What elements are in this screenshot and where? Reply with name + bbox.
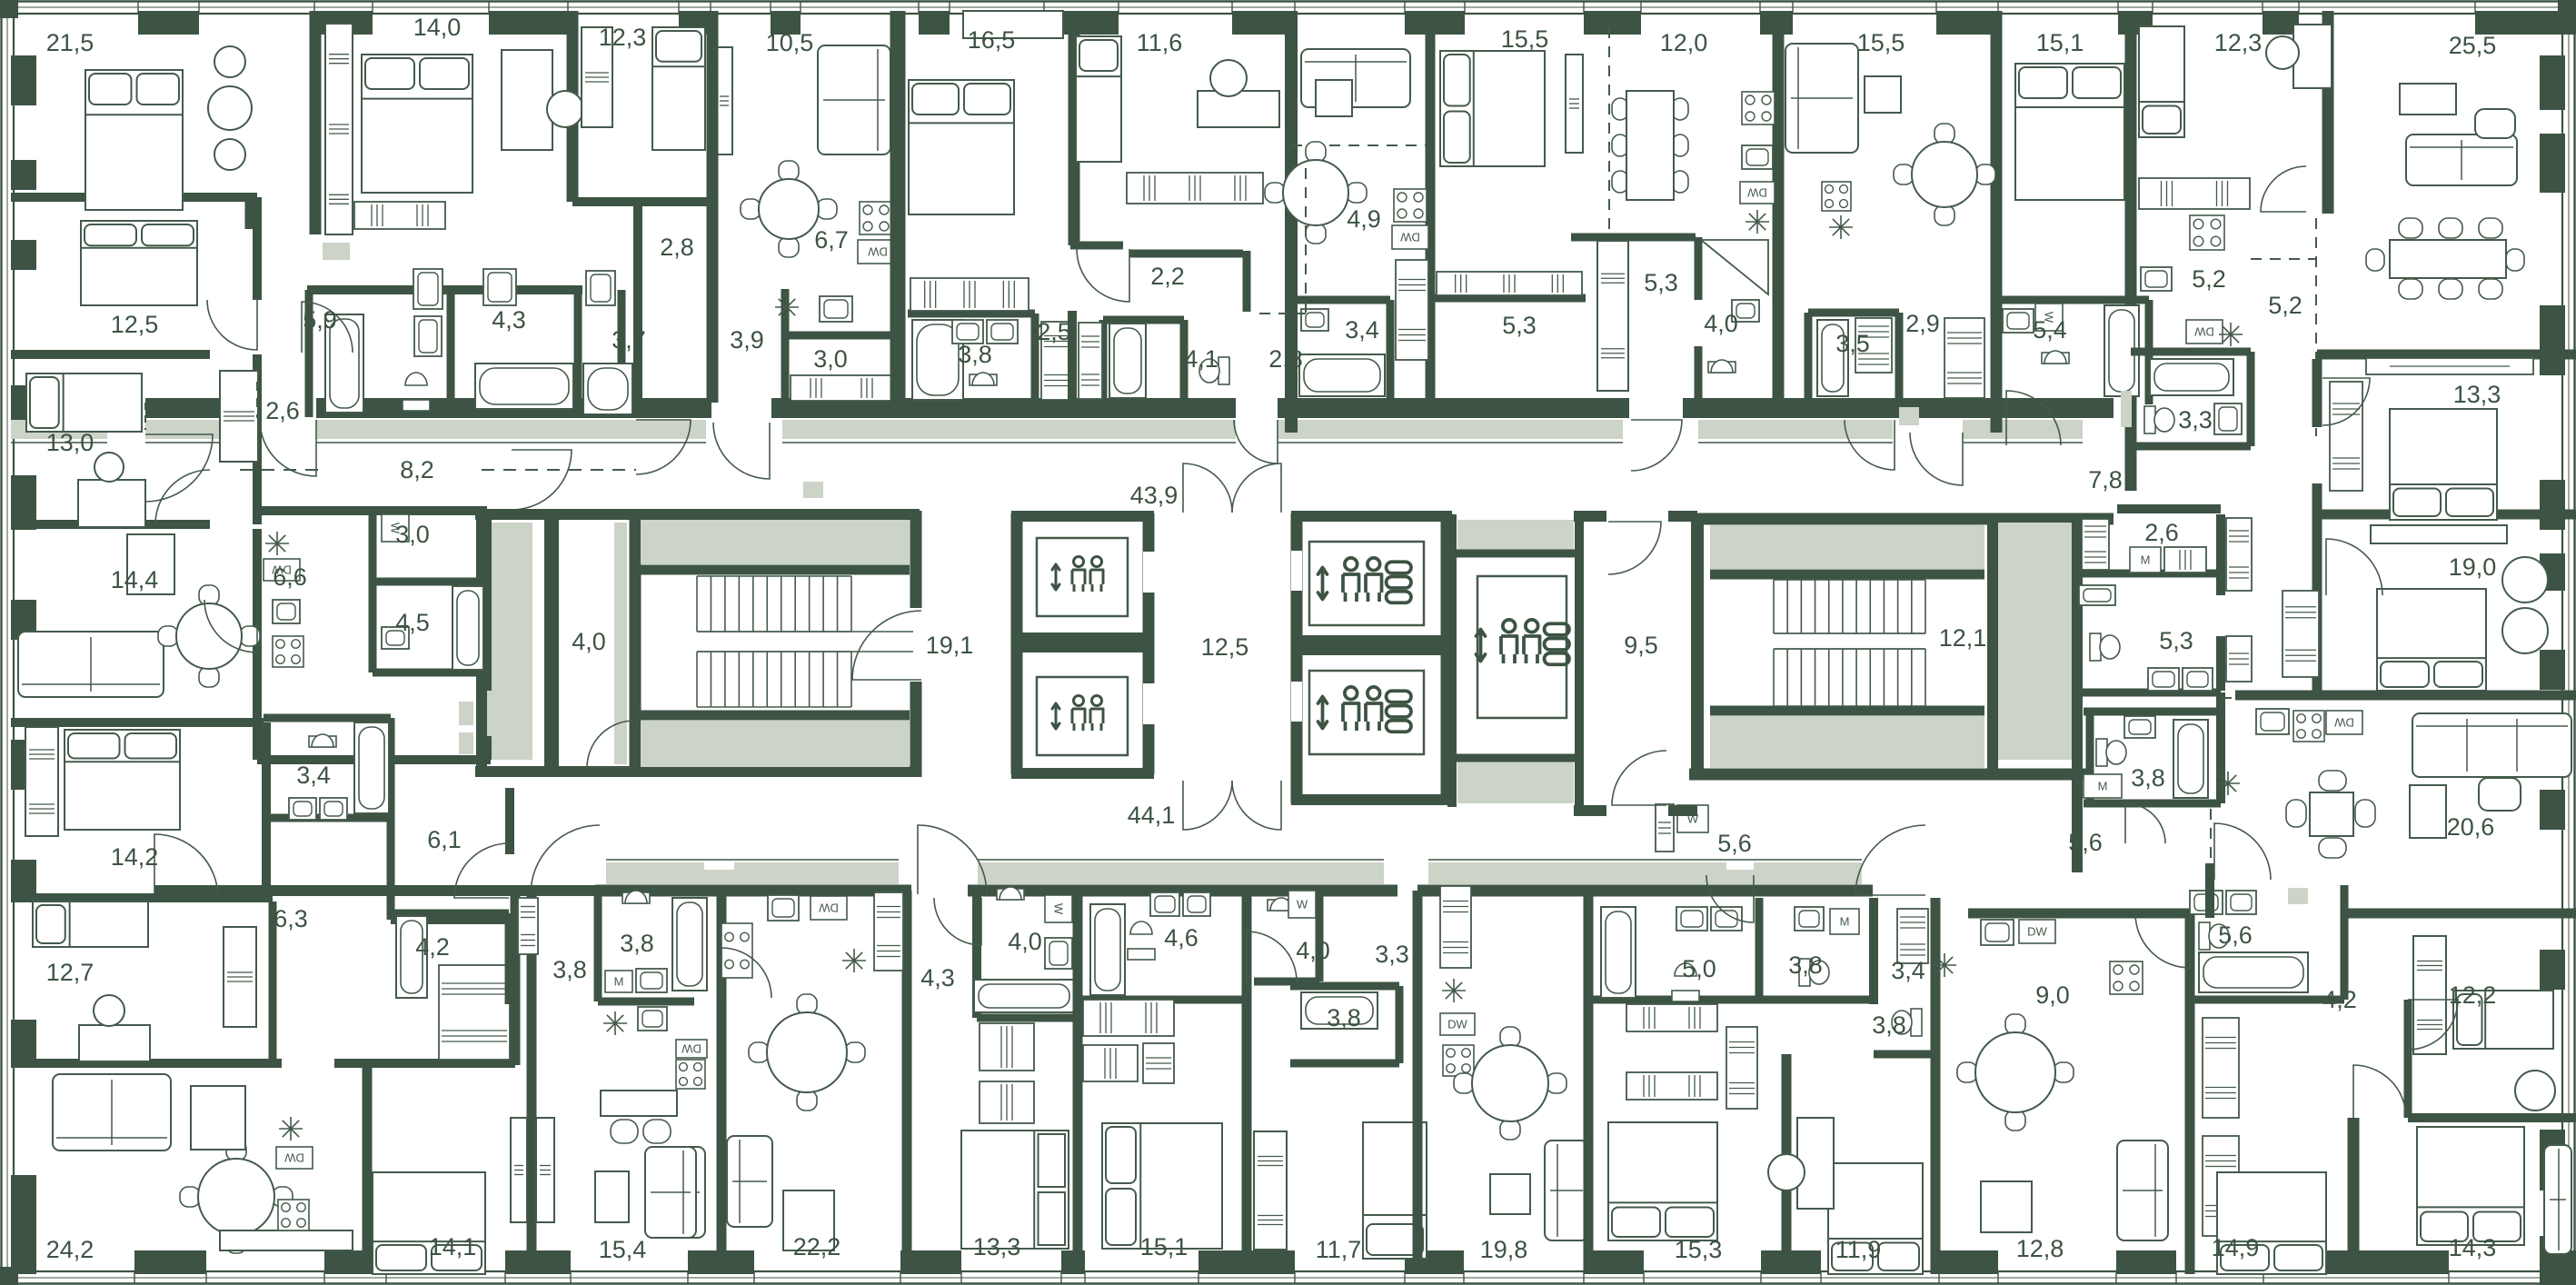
svg-text:12,3: 12,3	[2214, 29, 2263, 56]
svg-text:DW: DW	[818, 901, 838, 914]
svg-text:22,2: 22,2	[793, 1233, 841, 1260]
svg-text:2,9: 2,9	[1905, 310, 1940, 337]
svg-text:19,0: 19,0	[2449, 553, 2497, 581]
svg-text:DW: DW	[283, 1151, 303, 1164]
svg-text:5,3: 5,3	[1644, 269, 1678, 296]
svg-text:4,0: 4,0	[572, 628, 606, 655]
svg-text:5,2: 5,2	[2192, 265, 2226, 293]
svg-text:14,3: 14,3	[2449, 1234, 2497, 1261]
svg-text:10,5: 10,5	[766, 29, 814, 56]
svg-text:DW: DW	[2193, 324, 2213, 338]
svg-text:16,5: 16,5	[968, 26, 1016, 54]
svg-text:24,2: 24,2	[46, 1236, 94, 1263]
svg-text:5,6: 5,6	[1717, 830, 1752, 857]
svg-text:11,9: 11,9	[1835, 1236, 1882, 1263]
svg-text:13,3: 13,3	[973, 1233, 1021, 1260]
svg-text:5,9: 5,9	[303, 306, 337, 334]
svg-text:W: W	[1297, 898, 1308, 911]
svg-text:2,6: 2,6	[265, 397, 300, 424]
svg-text:12,1: 12,1	[1939, 624, 1987, 652]
svg-text:14,4: 14,4	[111, 566, 159, 593]
svg-text:2,6: 2,6	[2144, 519, 2179, 546]
svg-text:9,0: 9,0	[2035, 981, 2070, 1009]
svg-text:DW: DW	[1447, 1018, 1467, 1031]
svg-text:2,8: 2,8	[660, 234, 694, 261]
svg-text:15,5: 15,5	[1857, 29, 1905, 56]
svg-text:6,6: 6,6	[273, 563, 307, 591]
svg-text:13,3: 13,3	[2453, 381, 2501, 408]
svg-text:DW: DW	[681, 1041, 701, 1055]
svg-text:3,7: 3,7	[612, 326, 646, 354]
svg-text:43,9: 43,9	[1130, 482, 1179, 509]
svg-text:2,2: 2,2	[1150, 263, 1185, 290]
svg-text:5,3: 5,3	[1502, 312, 1537, 339]
svg-text:8,2: 8,2	[400, 456, 434, 483]
svg-text:19,8: 19,8	[1480, 1236, 1528, 1263]
svg-text:3,4: 3,4	[1891, 957, 1925, 984]
svg-text:DW: DW	[1399, 230, 1419, 244]
svg-text:3,0: 3,0	[813, 345, 848, 373]
svg-text:14,0: 14,0	[413, 14, 462, 41]
svg-text:4,3: 4,3	[920, 964, 955, 991]
svg-text:14,1: 14,1	[429, 1233, 477, 1260]
svg-text:5,3: 5,3	[2159, 627, 2193, 654]
svg-text:3,8: 3,8	[1872, 1011, 1906, 1039]
svg-text:W: W	[1051, 903, 1065, 915]
svg-text:3,8: 3,8	[1327, 1004, 1361, 1031]
svg-text:M: M	[1840, 915, 1850, 929]
svg-text:M: M	[2141, 553, 2151, 567]
svg-text:M: M	[2098, 780, 2108, 793]
svg-text:4,0: 4,0	[1296, 937, 1330, 964]
svg-text:M: M	[614, 975, 624, 989]
svg-text:3,3: 3,3	[1375, 941, 1409, 968]
svg-text:14,9: 14,9	[2212, 1234, 2260, 1261]
svg-text:11,6: 11,6	[1137, 29, 1183, 56]
svg-text:15,4: 15,4	[599, 1236, 647, 1263]
svg-text:12,0: 12,0	[1660, 29, 1708, 56]
svg-text:6,3: 6,3	[274, 905, 308, 932]
svg-text:13,0: 13,0	[46, 429, 94, 456]
svg-text:4,5: 4,5	[395, 609, 430, 636]
svg-text:21,5: 21,5	[46, 29, 94, 56]
svg-text:5,6: 5,6	[2218, 921, 2253, 949]
svg-text:3,8: 3,8	[1788, 951, 1823, 979]
svg-text:4,3: 4,3	[492, 306, 526, 334]
svg-text:20,6: 20,6	[2447, 813, 2495, 841]
svg-text:3,8: 3,8	[958, 341, 992, 368]
svg-text:3,8: 3,8	[2131, 764, 2165, 792]
svg-text:3,8: 3,8	[552, 956, 587, 983]
svg-text:3,9: 3,9	[730, 326, 764, 354]
svg-text:4,2: 4,2	[2322, 986, 2357, 1013]
svg-text:5,4: 5,4	[2033, 316, 2067, 344]
svg-text:2,5: 2,5	[1037, 318, 1071, 345]
svg-text:15,1: 15,1	[2036, 29, 2084, 56]
svg-text:15,1: 15,1	[1140, 1233, 1189, 1260]
svg-text:DW: DW	[2027, 925, 2047, 939]
svg-text:12,8: 12,8	[2016, 1235, 2064, 1262]
svg-text:DW: DW	[1746, 185, 1766, 199]
svg-text:6,7: 6,7	[814, 226, 849, 254]
svg-text:12,5: 12,5	[111, 311, 159, 338]
svg-text:DW: DW	[2333, 715, 2353, 729]
svg-text:6,1: 6,1	[427, 826, 462, 853]
svg-text:5,0: 5,0	[1682, 955, 1716, 982]
svg-text:4,0: 4,0	[1704, 310, 1738, 337]
svg-text:4,9: 4,9	[1347, 205, 1381, 233]
svg-text:4,0: 4,0	[1008, 928, 1042, 955]
svg-text:7,8: 7,8	[2088, 466, 2123, 493]
svg-text:3,0: 3,0	[395, 521, 430, 548]
svg-text:15,3: 15,3	[1675, 1236, 1723, 1263]
svg-text:4,1: 4,1	[1184, 345, 1218, 373]
svg-text:2,8: 2,8	[1268, 345, 1303, 373]
svg-text:44,1: 44,1	[1128, 802, 1176, 829]
svg-text:5,6: 5,6	[2068, 829, 2103, 856]
svg-text:12,3: 12,3	[599, 24, 647, 51]
svg-text:19,1: 19,1	[926, 632, 974, 659]
svg-text:3,4: 3,4	[296, 762, 331, 789]
svg-text:3,4: 3,4	[1345, 316, 1379, 344]
svg-text:3,3: 3,3	[2178, 406, 2213, 433]
svg-text:3,5: 3,5	[1835, 330, 1870, 357]
svg-text:DW: DW	[867, 244, 887, 258]
svg-text:15,5: 15,5	[1501, 25, 1549, 53]
svg-text:14,2: 14,2	[111, 843, 159, 871]
svg-text:3,8: 3,8	[620, 930, 654, 957]
svg-text:5,2: 5,2	[2268, 292, 2302, 319]
svg-text:4,6: 4,6	[1164, 924, 1198, 951]
svg-text:12,5: 12,5	[1201, 633, 1249, 661]
svg-text:11,7: 11,7	[1316, 1236, 1362, 1263]
svg-text:4,2: 4,2	[415, 933, 450, 961]
svg-text:25,5: 25,5	[2449, 32, 2497, 59]
svg-text:9,5: 9,5	[1624, 632, 1658, 659]
svg-text:12,2: 12,2	[2449, 981, 2497, 1009]
svg-text:12,7: 12,7	[46, 959, 94, 986]
